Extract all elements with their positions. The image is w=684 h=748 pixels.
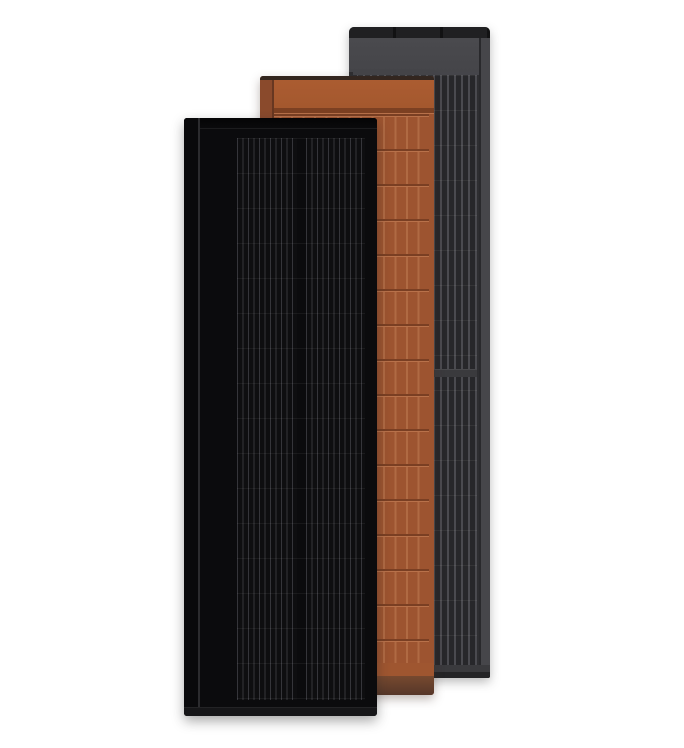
black-panel-cell-column-right	[306, 138, 366, 700]
terracotta-panel-header-band	[260, 80, 434, 108]
solar-panel-black	[184, 118, 377, 716]
black-panel-left-rail	[184, 118, 200, 716]
gray-panel-header-band	[349, 38, 490, 72]
gray-panel-top-cap	[349, 27, 490, 38]
black-panel-cell-grid	[237, 138, 365, 700]
gray-panel-right-rail	[479, 38, 490, 672]
black-panel-cell-column-left	[237, 138, 297, 700]
black-panel-bottom-strip	[184, 707, 377, 716]
product-image-canvas	[0, 0, 684, 748]
black-panel-top-cap	[184, 118, 377, 129]
